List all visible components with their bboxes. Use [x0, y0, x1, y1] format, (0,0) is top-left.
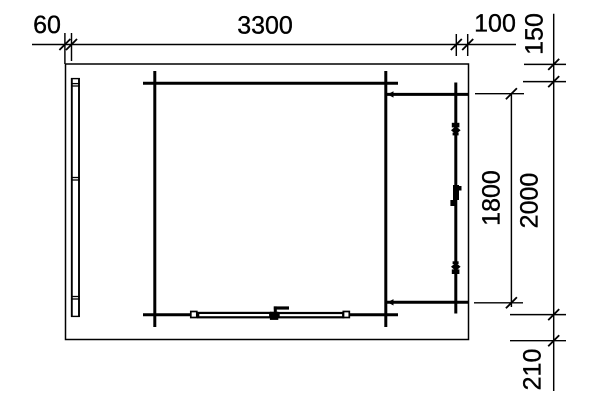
svg-text:2000: 2000: [516, 173, 544, 229]
svg-text:210: 210: [519, 349, 547, 391]
svg-text:3300: 3300: [237, 12, 293, 40]
svg-text:1800: 1800: [478, 170, 506, 226]
svg-text:150: 150: [521, 13, 549, 55]
svg-text:100: 100: [474, 10, 516, 38]
svg-text:60: 60: [33, 11, 61, 39]
